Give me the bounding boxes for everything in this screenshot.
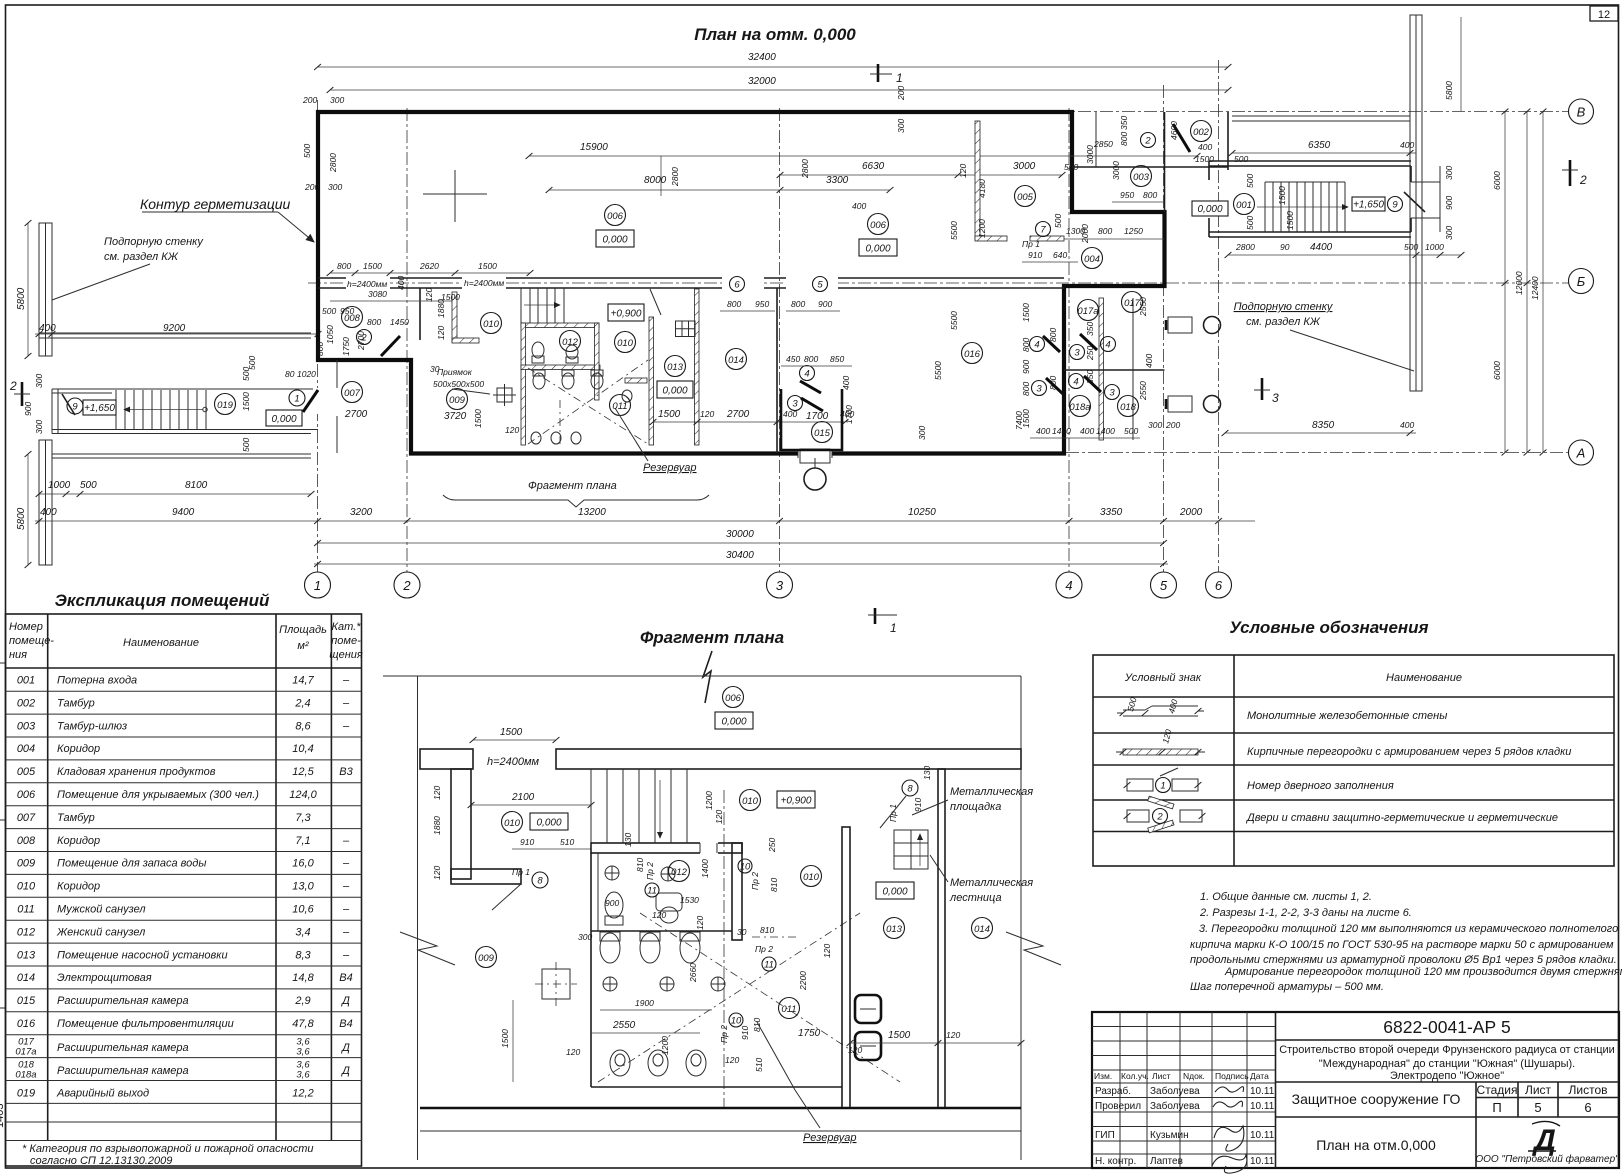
svg-text:400: 400 bbox=[1144, 354, 1154, 368]
svg-text:7: 7 bbox=[1040, 225, 1046, 236]
svg-text:2660: 2660 bbox=[688, 963, 698, 983]
svg-text:В3: В3 bbox=[339, 766, 353, 778]
svg-text:008: 008 bbox=[17, 835, 36, 847]
svg-text:001: 001 bbox=[17, 675, 35, 687]
svg-text:500: 500 bbox=[241, 438, 251, 452]
svg-text:400: 400 bbox=[396, 276, 406, 290]
svg-text:1880: 1880 bbox=[432, 816, 442, 835]
svg-text:–: – bbox=[342, 949, 350, 961]
svg-text:11: 11 bbox=[764, 960, 774, 971]
svg-text:30000: 30000 bbox=[726, 529, 754, 540]
svg-text:011: 011 bbox=[17, 904, 35, 916]
svg-text:–: – bbox=[342, 881, 350, 893]
svg-text:013: 013 bbox=[17, 949, 36, 961]
svg-text:018а: 018а bbox=[15, 1069, 36, 1080]
svg-text:2100: 2100 bbox=[511, 792, 535, 803]
svg-text:002: 002 bbox=[1193, 127, 1210, 138]
svg-text:300: 300 bbox=[34, 374, 44, 388]
svg-text:14,7: 14,7 bbox=[292, 675, 314, 687]
svg-text:120: 120 bbox=[958, 164, 968, 178]
svg-text:010: 010 bbox=[17, 881, 36, 893]
svg-text:018а: 018а bbox=[1069, 402, 1090, 413]
svg-text:012: 012 bbox=[17, 926, 35, 938]
svg-text:Потерна входа: Потерна входа bbox=[57, 675, 137, 687]
svg-text:009: 009 bbox=[17, 858, 35, 870]
svg-text:500: 500 bbox=[1124, 426, 1138, 436]
svg-text:6: 6 bbox=[1215, 578, 1223, 593]
svg-text:810: 810 bbox=[769, 878, 779, 892]
svg-text:007: 007 bbox=[344, 388, 361, 399]
svg-text:Кол.уч.: Кол.уч. bbox=[1121, 1071, 1149, 1081]
svg-text:400: 400 bbox=[1198, 142, 1212, 152]
svg-text:1000: 1000 bbox=[1425, 242, 1444, 252]
svg-text:014: 014 bbox=[728, 355, 744, 366]
svg-text:h=2400мм: h=2400мм bbox=[347, 279, 387, 289]
svg-text:9: 9 bbox=[1392, 200, 1398, 211]
svg-text:015: 015 bbox=[17, 995, 36, 1007]
svg-text:5500: 5500 bbox=[949, 221, 959, 240]
svg-text:1750: 1750 bbox=[798, 1028, 821, 1039]
svg-text:120: 120 bbox=[695, 916, 705, 930]
svg-text:В4: В4 bbox=[339, 972, 352, 984]
svg-text:1500: 1500 bbox=[363, 261, 382, 271]
svg-text:1400: 1400 bbox=[1096, 426, 1115, 436]
svg-text:8100: 8100 bbox=[185, 480, 208, 491]
svg-text:Кладовая хранения продуктов: Кладовая хранения продуктов bbox=[57, 766, 216, 778]
svg-text:6000: 6000 bbox=[1492, 361, 1502, 380]
svg-text:+1,650: +1,650 bbox=[1353, 200, 1384, 211]
svg-text:ния: ния bbox=[9, 649, 27, 661]
svg-text:120: 120 bbox=[432, 866, 442, 880]
svg-text:Д: Д bbox=[340, 1042, 350, 1054]
svg-text:2700: 2700 bbox=[726, 409, 750, 420]
svg-text:План на отм.0,000: План на отм.0,000 bbox=[1316, 1137, 1436, 1153]
svg-text:Тамбур: Тамбур bbox=[57, 697, 95, 709]
svg-text:1750: 1750 bbox=[341, 337, 351, 356]
svg-text:800: 800 bbox=[1143, 190, 1157, 200]
svg-text:1200: 1200 bbox=[660, 1036, 670, 1055]
svg-text:3: 3 bbox=[1272, 391, 1279, 405]
svg-text:910: 910 bbox=[520, 837, 534, 847]
svg-text:800: 800 bbox=[1098, 226, 1112, 236]
svg-text:400: 400 bbox=[1080, 426, 1094, 436]
svg-text:80: 80 bbox=[285, 369, 295, 379]
svg-text:1500: 1500 bbox=[1195, 154, 1214, 164]
svg-text:800: 800 bbox=[337, 261, 351, 271]
svg-text:2200: 2200 bbox=[798, 971, 808, 991]
svg-text:П: П bbox=[1492, 1100, 1501, 1115]
svg-text:10: 10 bbox=[731, 1016, 742, 1027]
svg-text:м²: м² bbox=[297, 640, 309, 652]
svg-text:* Категория по взрывопожарной: * Категория по взрывопожарной и пожарной… bbox=[22, 1143, 314, 1155]
svg-text:Кирпичные перегородки с армиро: Кирпичные перегородки с армированием чер… bbox=[1247, 746, 1571, 758]
svg-text:3. Перегородки толщиной 120 мм: 3. Перегородки толщиной 120 мм выполняют… bbox=[1199, 923, 1618, 935]
svg-text:2550: 2550 bbox=[1138, 381, 1148, 401]
svg-text:4: 4 bbox=[1065, 578, 1072, 593]
svg-text:10,6: 10,6 bbox=[292, 904, 314, 916]
svg-text:"Международная" до станции "Юж: "Международная" до станции "Южная" (Шуша… bbox=[1319, 1058, 1575, 1070]
svg-text:7,3: 7,3 bbox=[295, 812, 311, 824]
svg-text:013: 013 bbox=[886, 924, 903, 935]
svg-text:250: 250 bbox=[767, 838, 777, 853]
svg-text:90: 90 bbox=[1280, 242, 1290, 252]
svg-text:120: 120 bbox=[946, 1030, 960, 1040]
svg-text:810: 810 bbox=[635, 858, 645, 872]
svg-text:013: 013 bbox=[667, 362, 684, 373]
svg-text:3300: 3300 bbox=[826, 175, 849, 186]
svg-text:1500: 1500 bbox=[1285, 211, 1295, 230]
svg-text:1450: 1450 bbox=[390, 317, 409, 327]
svg-text:Номер дверного заполнения: Номер дверного заполнения bbox=[1247, 780, 1394, 792]
svg-text:120: 120 bbox=[714, 810, 724, 824]
svg-text:300: 300 bbox=[917, 426, 927, 440]
svg-text:1200: 1200 bbox=[704, 791, 714, 810]
svg-text:800: 800 bbox=[367, 317, 381, 327]
svg-text:9200: 9200 bbox=[163, 323, 186, 334]
svg-text:3: 3 bbox=[1036, 384, 1042, 395]
svg-text:010: 010 bbox=[742, 796, 759, 807]
svg-text:016: 016 bbox=[17, 1018, 36, 1030]
svg-text:120: 120 bbox=[822, 944, 832, 958]
svg-text:2: 2 bbox=[1144, 136, 1151, 147]
svg-text:Пр 1: Пр 1 bbox=[512, 867, 530, 877]
svg-text:3000: 3000 bbox=[1013, 161, 1036, 172]
svg-text:Изм.: Изм. bbox=[1094, 1071, 1112, 1081]
svg-text:250: 250 bbox=[1085, 346, 1095, 361]
svg-text:Пр 2: Пр 2 bbox=[645, 862, 655, 880]
svg-text:300: 300 bbox=[328, 182, 342, 192]
svg-text:800: 800 bbox=[1048, 376, 1058, 390]
svg-text:Металлическая: Металлическая bbox=[950, 877, 1033, 889]
svg-text:1700: 1700 bbox=[844, 405, 854, 424]
svg-text:950: 950 bbox=[1120, 190, 1134, 200]
svg-text:120: 120 bbox=[652, 910, 666, 920]
svg-text:8000: 8000 bbox=[644, 175, 667, 186]
svg-text:Монолитные железобетонные стен: Монолитные железобетонные стены bbox=[1247, 710, 1447, 722]
svg-text:016: 016 bbox=[964, 349, 981, 360]
svg-text:6: 6 bbox=[734, 280, 740, 291]
svg-text:13,0: 13,0 bbox=[292, 881, 314, 893]
svg-text:А: А bbox=[1576, 446, 1586, 461]
svg-text:014: 014 bbox=[974, 924, 990, 935]
svg-text:0,000: 0,000 bbox=[721, 717, 746, 728]
svg-text:2: 2 bbox=[9, 379, 17, 393]
svg-text:900: 900 bbox=[23, 402, 33, 416]
svg-text:Металлическая: Металлическая bbox=[950, 786, 1033, 798]
svg-text:014: 014 bbox=[17, 972, 35, 984]
svg-text:h=2400мм: h=2400мм bbox=[487, 756, 540, 768]
svg-text:1: 1 bbox=[896, 71, 903, 85]
svg-text:3720: 3720 bbox=[444, 411, 467, 422]
svg-text:6630: 6630 bbox=[862, 161, 885, 172]
svg-text:Лаптев: Лаптев bbox=[1150, 1156, 1183, 1167]
svg-text:3: 3 bbox=[776, 578, 784, 593]
svg-text:Площадь: Площадь bbox=[279, 624, 327, 636]
svg-text:500: 500 bbox=[1245, 216, 1255, 230]
svg-text:900: 900 bbox=[818, 299, 832, 309]
svg-text:8350: 8350 bbox=[1312, 420, 1335, 431]
svg-text:13200: 13200 bbox=[578, 507, 606, 518]
svg-text:120: 120 bbox=[566, 1047, 580, 1057]
svg-text:800: 800 bbox=[315, 342, 325, 356]
svg-text:120: 120 bbox=[424, 288, 434, 302]
svg-text:2620: 2620 bbox=[419, 261, 439, 271]
svg-text:Расширительная камера: Расширительная камера bbox=[57, 995, 189, 1007]
svg-text:400: 400 bbox=[1400, 140, 1414, 150]
svg-text:0,000: 0,000 bbox=[1197, 204, 1222, 215]
svg-text:5500: 5500 bbox=[949, 311, 959, 330]
svg-text:009: 009 bbox=[449, 395, 466, 406]
svg-text:1200: 1200 bbox=[977, 219, 987, 238]
svg-text:4: 4 bbox=[1073, 377, 1078, 388]
svg-text:Лист: Лист bbox=[1525, 1083, 1552, 1097]
svg-text:3: 3 bbox=[792, 399, 798, 410]
svg-text:500: 500 bbox=[1234, 154, 1248, 164]
svg-text:30: 30 bbox=[430, 364, 440, 374]
svg-text:1500: 1500 bbox=[500, 1029, 510, 1048]
svg-text:Б: Б bbox=[1577, 274, 1586, 289]
svg-text:2000: 2000 bbox=[1080, 224, 1090, 244]
svg-text:9400: 9400 bbox=[172, 507, 195, 518]
svg-text:8,3: 8,3 bbox=[295, 949, 311, 961]
svg-text:019: 019 bbox=[217, 400, 234, 411]
svg-text:6350: 6350 bbox=[1308, 140, 1331, 151]
svg-text:10.11: 10.11 bbox=[1250, 1156, 1275, 1167]
svg-text:1: 1 bbox=[294, 394, 299, 405]
svg-text:Помещение для укрываемых (300: Помещение для укрываемых (300 чел.) bbox=[57, 789, 259, 801]
svg-text:017а: 017а bbox=[1077, 306, 1098, 317]
svg-text:6822-0041-АР 5: 6822-0041-АР 5 bbox=[1383, 1017, 1510, 1037]
svg-text:4: 4 bbox=[1105, 340, 1110, 351]
svg-text:Дата: Дата bbox=[1250, 1071, 1269, 1081]
svg-text:14,8: 14,8 bbox=[292, 972, 314, 984]
svg-text:Мужской санузел: Мужской санузел bbox=[57, 904, 146, 916]
svg-text:План на отм. 0,000: План на отм. 0,000 bbox=[694, 25, 856, 44]
svg-text:Подпорную стенку: Подпорную стенку bbox=[1234, 301, 1334, 313]
svg-text:5: 5 bbox=[1534, 1100, 1541, 1115]
svg-text:5500: 5500 bbox=[933, 361, 943, 380]
svg-text:950: 950 bbox=[340, 306, 354, 316]
svg-text:800: 800 bbox=[727, 299, 741, 309]
svg-text:500: 500 bbox=[80, 480, 97, 491]
svg-text:006: 006 bbox=[607, 211, 624, 222]
svg-text:Д: Д bbox=[340, 1065, 350, 1077]
svg-text:800: 800 bbox=[1021, 338, 1031, 352]
svg-text:Резервуар: Резервуар bbox=[803, 1132, 857, 1144]
svg-text:350: 350 bbox=[1119, 116, 1129, 130]
svg-text:Помещение фильтровентиляции: Помещение фильтровентиляции bbox=[57, 1018, 234, 1030]
svg-text:2. Разрезы 1-1, 2-2, 3-3 даны: 2. Разрезы 1-1, 2-2, 3-3 даны на листе 6… bbox=[1199, 907, 1412, 919]
svg-text:4600: 4600 bbox=[1169, 121, 1179, 140]
svg-text:005: 005 bbox=[17, 766, 36, 778]
svg-text:–: – bbox=[342, 675, 350, 687]
svg-text:910: 910 bbox=[913, 798, 923, 812]
svg-text:4400: 4400 bbox=[1310, 242, 1333, 253]
svg-text:Пр 2: Пр 2 bbox=[755, 944, 773, 954]
svg-text:Условный знак: Условный знак bbox=[1124, 672, 1202, 684]
svg-text:Тамбур: Тамбур bbox=[57, 812, 95, 824]
svg-text:Заболуева: Заболуева bbox=[1150, 1100, 1200, 1112]
svg-text:800: 800 bbox=[1119, 132, 1129, 146]
svg-text:017а: 017а bbox=[15, 1047, 36, 1058]
svg-text:1050: 1050 bbox=[325, 325, 335, 344]
svg-text:3000: 3000 bbox=[1085, 145, 1095, 164]
svg-text:–: – bbox=[342, 720, 350, 732]
svg-text:Д: Д bbox=[340, 995, 350, 1007]
svg-text:0,000: 0,000 bbox=[865, 244, 890, 255]
svg-text:010: 010 bbox=[483, 319, 500, 330]
svg-text:Кат.*: Кат.* bbox=[332, 621, 362, 633]
svg-text:200: 200 bbox=[896, 86, 906, 101]
svg-text:001: 001 bbox=[1236, 200, 1252, 211]
svg-text:200: 200 bbox=[1165, 420, 1180, 430]
svg-text:0,000: 0,000 bbox=[602, 235, 627, 246]
svg-text:12,2: 12,2 bbox=[292, 1088, 313, 1100]
svg-text:007: 007 bbox=[17, 812, 36, 824]
svg-text:+0,900: +0,900 bbox=[781, 796, 812, 807]
svg-text:–: – bbox=[342, 926, 350, 938]
svg-text:15900: 15900 bbox=[580, 142, 608, 153]
svg-text:2: 2 bbox=[402, 578, 411, 593]
svg-text:400: 400 bbox=[852, 201, 866, 211]
svg-text:124,0: 124,0 bbox=[289, 789, 317, 801]
svg-text:8: 8 bbox=[907, 784, 913, 795]
svg-text:010: 010 bbox=[617, 338, 634, 349]
svg-text:400: 400 bbox=[841, 376, 851, 390]
svg-text:500: 500 bbox=[247, 356, 257, 370]
svg-text:1900: 1900 bbox=[635, 998, 654, 1008]
svg-text:3000: 3000 bbox=[1111, 161, 1121, 180]
svg-text:003: 003 bbox=[1133, 172, 1150, 183]
svg-text:009: 009 bbox=[478, 953, 495, 964]
svg-text:510: 510 bbox=[754, 1058, 764, 1072]
svg-text:300: 300 bbox=[330, 95, 344, 105]
svg-text:006: 006 bbox=[725, 693, 742, 704]
svg-text:Пр 2: Пр 2 bbox=[750, 872, 760, 890]
svg-text:500: 500 bbox=[1064, 162, 1078, 172]
svg-text:5800: 5800 bbox=[16, 287, 27, 310]
svg-text:950: 950 bbox=[755, 299, 769, 309]
svg-text:В: В bbox=[1577, 105, 1586, 120]
svg-text:30: 30 bbox=[737, 927, 747, 937]
svg-text:1880: 1880 bbox=[436, 299, 446, 318]
svg-text:1400: 1400 bbox=[1052, 426, 1071, 436]
svg-text:Заболуева: Заболуева bbox=[1150, 1085, 1200, 1097]
svg-text:–: – bbox=[342, 904, 350, 916]
svg-text:Женский санузел: Женский санузел bbox=[56, 926, 145, 938]
svg-text:2850: 2850 bbox=[1093, 139, 1113, 149]
svg-text:006: 006 bbox=[870, 220, 887, 231]
svg-text:2800: 2800 bbox=[670, 167, 680, 187]
svg-text:019: 019 bbox=[17, 1088, 35, 1100]
svg-text:10,4: 10,4 bbox=[292, 743, 313, 755]
svg-text:350: 350 bbox=[1085, 322, 1095, 336]
svg-text:2: 2 bbox=[360, 333, 367, 344]
svg-text:Nдок.: Nдок. bbox=[1183, 1071, 1205, 1081]
svg-text:800: 800 bbox=[791, 299, 805, 309]
svg-text:900: 900 bbox=[605, 898, 619, 908]
svg-text:400: 400 bbox=[1036, 426, 1050, 436]
svg-text:2800: 2800 bbox=[800, 159, 810, 179]
svg-text:продольными стержнями из армат: продольными стержнями из арматурной пров… bbox=[1190, 954, 1617, 966]
svg-text:1: 1 bbox=[314, 578, 321, 593]
svg-text:10250: 10250 bbox=[908, 507, 936, 518]
svg-text:Приямок: Приямок bbox=[437, 367, 473, 377]
svg-text:30400: 30400 bbox=[726, 550, 754, 561]
svg-text:5: 5 bbox=[817, 280, 823, 291]
svg-text:1500: 1500 bbox=[1021, 409, 1031, 428]
svg-text:0,000: 0,000 bbox=[536, 818, 561, 829]
svg-text:1500: 1500 bbox=[1277, 186, 1287, 205]
svg-text:300: 300 bbox=[34, 420, 44, 434]
svg-text:005: 005 bbox=[1017, 192, 1034, 203]
svg-text:площадка: площадка bbox=[950, 801, 1001, 813]
svg-text:Наименование: Наименование bbox=[1386, 672, 1462, 684]
svg-text:ГИП: ГИП bbox=[1095, 1130, 1115, 1141]
svg-text:2000: 2000 bbox=[1179, 507, 1203, 518]
svg-text:10: 10 bbox=[740, 862, 751, 873]
svg-text:0,000: 0,000 bbox=[662, 386, 687, 397]
svg-text:Стадия: Стадия bbox=[1477, 1083, 1518, 1097]
svg-text:1: 1 bbox=[890, 621, 897, 635]
svg-text:Подпись: Подпись bbox=[1215, 1071, 1249, 1081]
svg-text:450: 450 bbox=[786, 354, 800, 364]
svg-text:015: 015 bbox=[814, 428, 831, 439]
svg-text:–: – bbox=[342, 858, 350, 870]
svg-text:003: 003 bbox=[17, 720, 36, 732]
svg-text:200: 200 bbox=[304, 182, 319, 192]
svg-text:500: 500 bbox=[1053, 214, 1063, 228]
svg-text:Фрагмент плана: Фрагмент плана bbox=[640, 628, 784, 647]
svg-text:300: 300 bbox=[578, 932, 592, 942]
svg-text:200: 200 bbox=[302, 95, 317, 105]
svg-text:900: 900 bbox=[1444, 196, 1454, 210]
svg-text:2700: 2700 bbox=[344, 409, 368, 420]
svg-text:6: 6 bbox=[1584, 1100, 1591, 1115]
svg-text:поме-: поме- bbox=[331, 635, 361, 647]
svg-text:2550: 2550 bbox=[1138, 297, 1148, 317]
svg-text:h=2400мм: h=2400мм bbox=[464, 278, 504, 288]
svg-text:011: 011 bbox=[612, 401, 627, 412]
svg-text:510: 510 bbox=[560, 837, 574, 847]
svg-text:Коридор: Коридор bbox=[57, 835, 100, 847]
svg-text:1500: 1500 bbox=[241, 392, 251, 411]
svg-text:3080: 3080 bbox=[368, 289, 387, 299]
svg-text:Наименование: Наименование bbox=[123, 637, 199, 649]
svg-text:500: 500 bbox=[322, 306, 336, 316]
svg-text:Лист: Лист bbox=[1152, 1071, 1171, 1081]
svg-text:120: 120 bbox=[848, 1045, 862, 1055]
svg-text:Д: Д bbox=[1531, 1124, 1556, 1157]
svg-text:3: 3 bbox=[1074, 348, 1080, 359]
svg-text:1500: 1500 bbox=[658, 409, 681, 420]
svg-text:Электродепо "Южное": Электродепо "Южное" bbox=[1390, 1070, 1504, 1082]
svg-text:Аварийный выход: Аварийный выход bbox=[56, 1088, 149, 1100]
svg-text:3350: 3350 bbox=[1100, 507, 1123, 518]
svg-text:800: 800 bbox=[1021, 382, 1031, 396]
svg-text:Расширительная камера: Расширительная камера bbox=[57, 1065, 189, 1077]
svg-text:3: 3 bbox=[1109, 388, 1115, 399]
svg-text:500х500х500: 500х500х500 bbox=[433, 379, 484, 389]
svg-text:32000: 32000 bbox=[748, 76, 776, 87]
svg-text:–: – bbox=[342, 697, 350, 709]
svg-text:500: 500 bbox=[1245, 174, 1255, 188]
svg-text:1500: 1500 bbox=[500, 727, 523, 738]
svg-text:640: 640 bbox=[1053, 250, 1067, 260]
svg-text:300: 300 bbox=[1148, 420, 1162, 430]
svg-text:006: 006 bbox=[17, 789, 36, 801]
svg-text:810: 810 bbox=[752, 1018, 762, 1032]
